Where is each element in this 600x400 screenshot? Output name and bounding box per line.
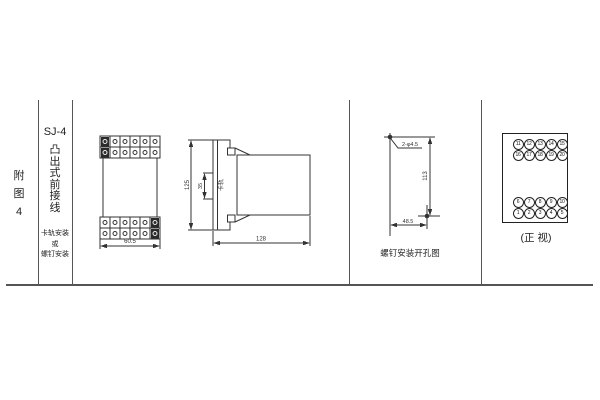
terminal-face-view: 11 12 13 14 15 16 17 18 19 20 6 7 8 9 10… bbox=[502, 133, 568, 223]
mounting-note: 卡轨安装 或 螺钉安装 bbox=[38, 229, 72, 261]
terminal-5: 5 bbox=[557, 208, 568, 219]
terminal-20: 20 bbox=[557, 150, 568, 161]
front-width-dim: 60.5 bbox=[124, 239, 136, 245]
terminal-14: 14 bbox=[546, 139, 557, 150]
table-divider-3 bbox=[349, 100, 350, 284]
terminal-8: 8 bbox=[535, 197, 546, 208]
drill-diagram: 2-φ4.5 113 48.5 bbox=[358, 128, 453, 246]
top-latch bbox=[228, 148, 236, 155]
side-height-dim: 125 bbox=[185, 179, 191, 190]
terminal-3: 3 bbox=[535, 208, 546, 219]
relay-body-side bbox=[237, 155, 310, 215]
rail-label: 卡轨 bbox=[217, 179, 225, 191]
table-divider-2 bbox=[72, 100, 73, 284]
terminal-17: 17 bbox=[524, 150, 535, 161]
rail-width-dim: 35 bbox=[198, 183, 204, 189]
case-type-label: 凸 出 式 前 接 线 bbox=[38, 145, 72, 214]
marked-terminal bbox=[101, 148, 109, 158]
terminal-7: 7 bbox=[524, 197, 535, 208]
table-divider-4 bbox=[481, 100, 482, 284]
terminal-12: 12 bbox=[524, 139, 535, 150]
terminal-6: 6 bbox=[513, 197, 524, 208]
marked-terminal bbox=[101, 137, 109, 147]
figure-number-label: 附 图 4 bbox=[0, 167, 38, 221]
terminal-view-caption: (正 视) bbox=[481, 230, 591, 245]
hole-spec-label: 2-φ4.5 bbox=[402, 142, 418, 148]
side-view-drawing: 125 35 卡轨 128 bbox=[183, 128, 318, 250]
terminal-13: 13 bbox=[535, 139, 546, 150]
side-depth-dim: 128 bbox=[256, 237, 267, 243]
front-flange bbox=[213, 140, 218, 230]
table-bottom-border bbox=[6, 284, 593, 286]
top-mounting-hole bbox=[388, 135, 393, 140]
marked-terminal bbox=[151, 218, 159, 228]
relay-body-front bbox=[103, 158, 157, 217]
terminal-4: 4 bbox=[546, 208, 557, 219]
terminal-2: 2 bbox=[524, 208, 535, 219]
front-view-drawing: 60.5 bbox=[95, 128, 170, 254]
model-label: SJ-4 bbox=[38, 126, 72, 138]
terminal-1: 1 bbox=[513, 208, 524, 219]
terminal-15: 15 bbox=[557, 139, 568, 150]
terminal-19: 19 bbox=[546, 150, 557, 161]
terminal-18: 18 bbox=[535, 150, 546, 161]
terminal-16: 16 bbox=[513, 150, 524, 161]
drill-diagram-caption: 螺钉安装开孔图 bbox=[358, 247, 462, 259]
terminal-9: 9 bbox=[546, 197, 557, 208]
terminal-11: 11 bbox=[513, 139, 524, 150]
hole-h-spacing-dim: 48.5 bbox=[403, 219, 414, 225]
marked-terminal bbox=[151, 229, 159, 239]
bottom-latch bbox=[228, 215, 236, 222]
figure-sheet: 附 图 4 SJ-4 凸 出 式 前 接 线 卡轨安装 或 螺钉安装 bbox=[0, 0, 600, 400]
terminal-10: 10 bbox=[557, 197, 568, 208]
hole-v-spacing-dim: 113 bbox=[423, 171, 429, 181]
